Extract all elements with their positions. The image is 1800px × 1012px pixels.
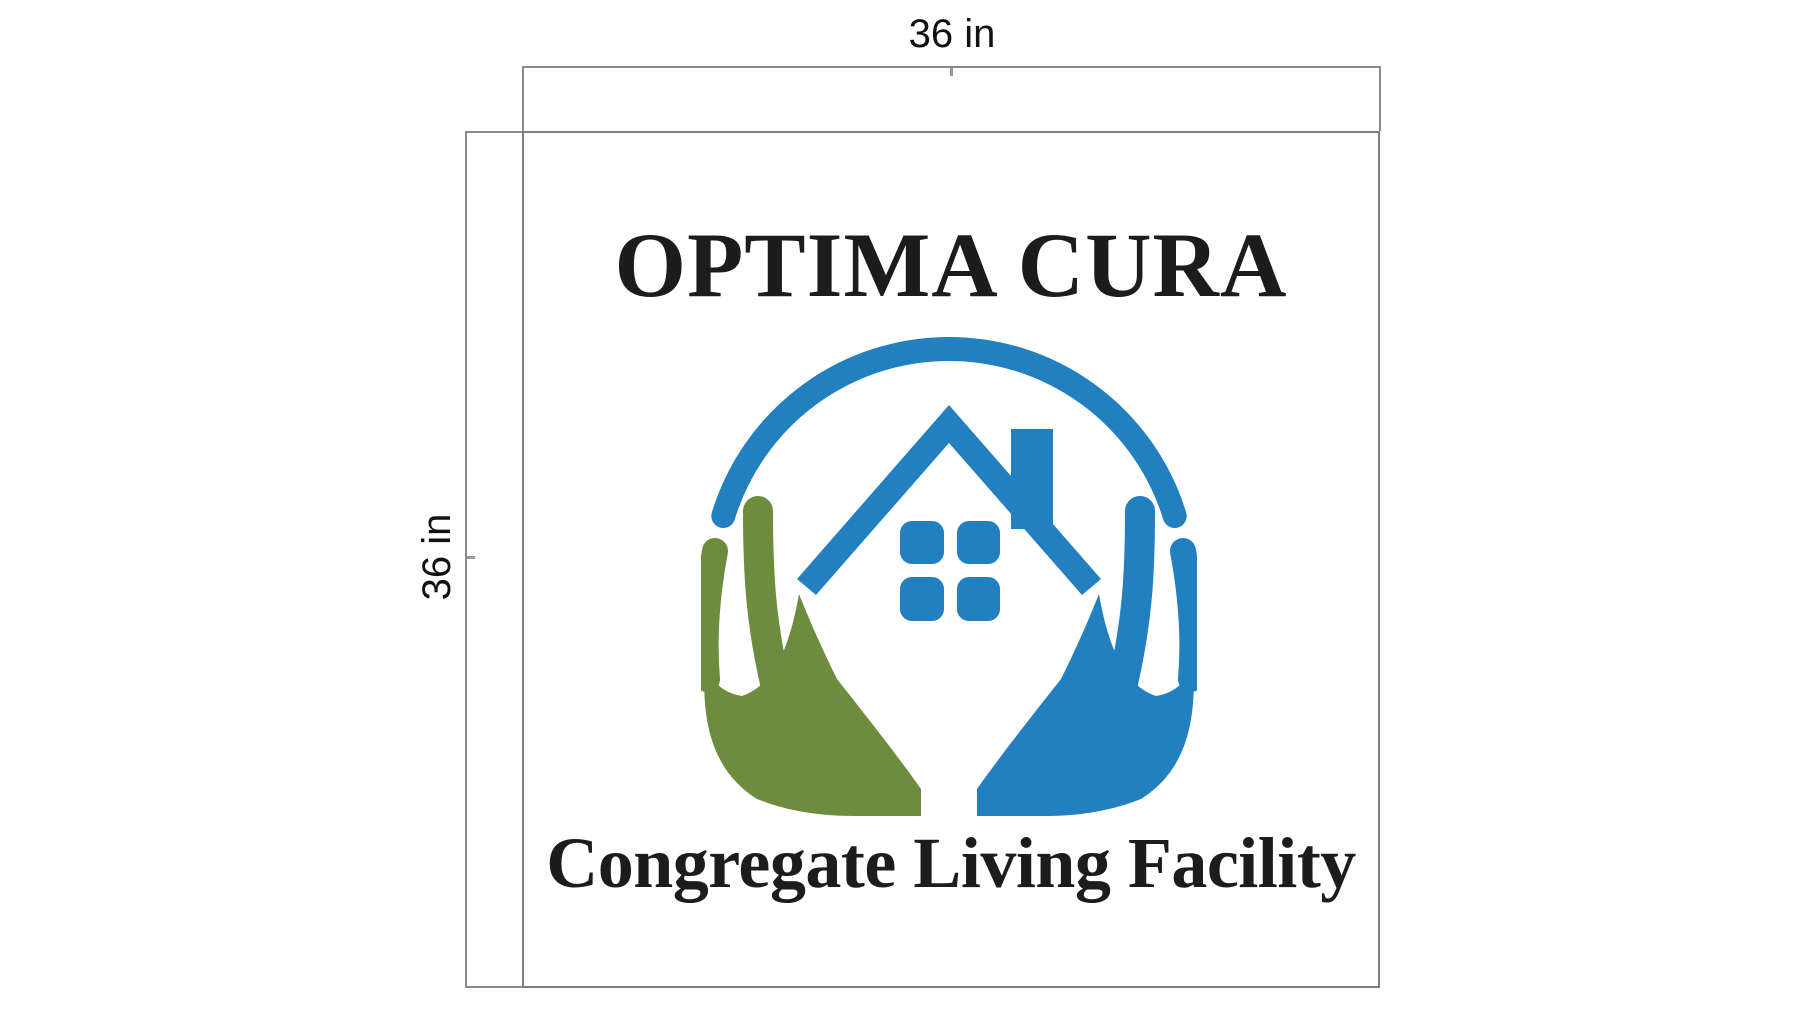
top-dimension-tick-right (1379, 66, 1381, 131)
top-dimension-center-tick (950, 68, 953, 76)
optima-cura-logo (701, 331, 1197, 827)
sign-canvas[interactable]: OPTIMA CURA Congregate Living Facility (522, 131, 1380, 988)
sign-proof-stage: 36 in 36 in OPTIMA CURA (0, 0, 1800, 1012)
green-hand-thumb (706, 551, 715, 679)
left-dimension-tick-bottom (465, 986, 522, 988)
sign-title: OPTIMA CURA (524, 219, 1378, 311)
green-hand-palm (704, 594, 921, 816)
window-pane (900, 577, 944, 621)
window-pane (900, 521, 944, 564)
house-roof (797, 405, 1101, 595)
window-pane (957, 521, 1000, 564)
green-hand-finger (758, 511, 775, 683)
top-dimension-label: 36 in (909, 14, 996, 54)
top-dimension-tick-left (522, 66, 524, 131)
blue-hand-thumb (1183, 551, 1192, 679)
window-pane (957, 577, 1000, 621)
blue-hand-finger (1123, 511, 1140, 683)
sign-subtitle: Congregate Living Facility (524, 827, 1378, 899)
left-dimension-label: 36 in (417, 514, 457, 601)
left-dimension-tick-top (465, 131, 522, 133)
left-dimension-line (465, 131, 467, 988)
left-dimension-center-tick (467, 556, 475, 559)
blue-hand-palm (977, 594, 1194, 816)
